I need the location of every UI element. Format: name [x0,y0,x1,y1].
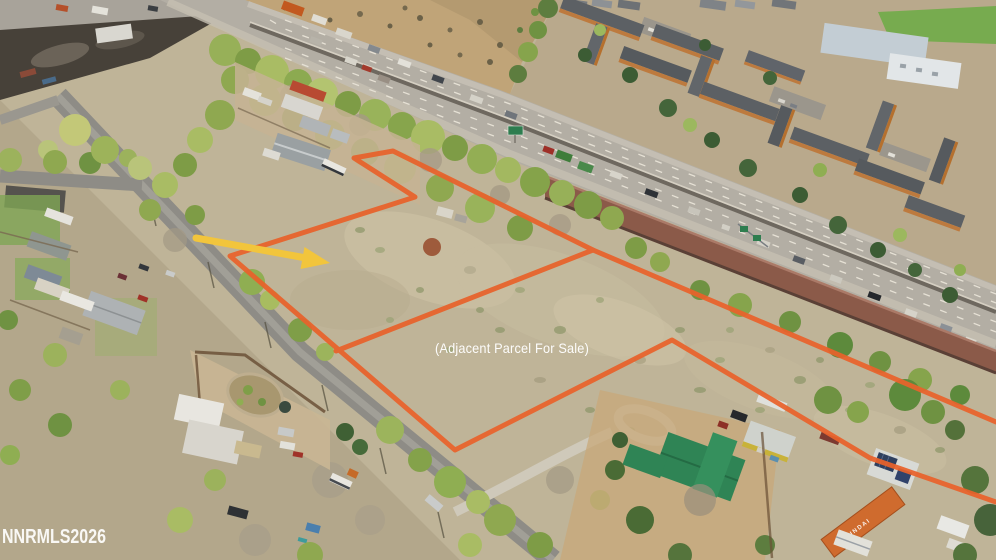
side-street [0,176,142,185]
parcel-label: (Adjacent Parcel For Sale) [435,340,589,356]
aerial-photo: HYUNDAI (Adjacent Parcel For Sale) NNR [0,0,996,560]
aerial-photo-canvas: HYUNDAI (Adjacent Parcel For Sale) NNR [0,0,996,560]
watermark: NNRMLS2026 [2,526,106,548]
